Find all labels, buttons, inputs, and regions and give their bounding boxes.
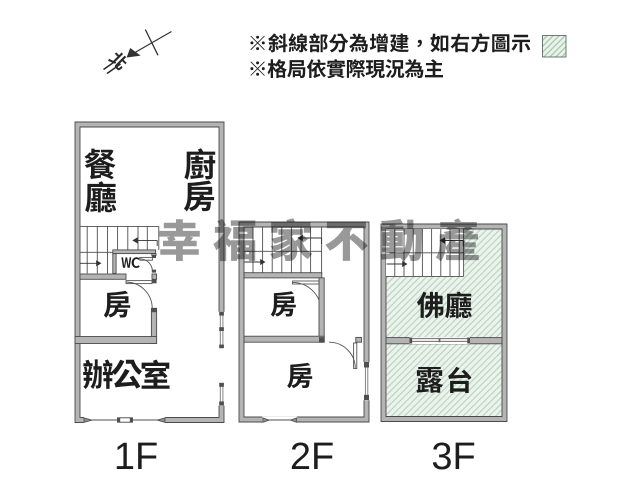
svg-text:2F: 2F [290, 436, 334, 478]
svg-text:1F: 1F [114, 436, 158, 478]
svg-text:3F: 3F [431, 436, 475, 478]
